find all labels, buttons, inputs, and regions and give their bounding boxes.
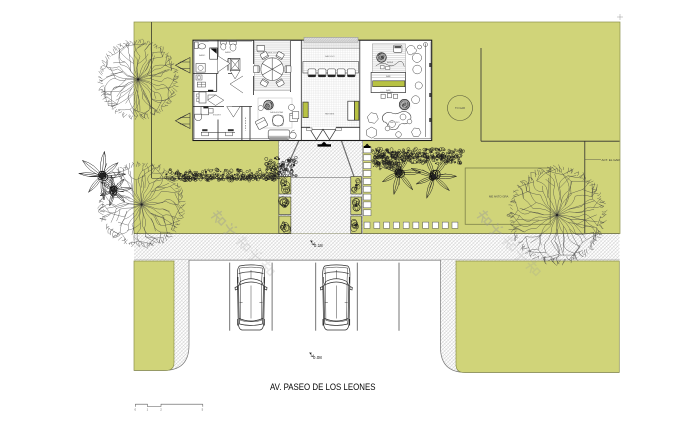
svg-text:PAT MES: PAT MES	[325, 113, 335, 116]
svg-text:BAR: BAR	[386, 75, 391, 78]
svg-text:2: 2	[160, 408, 162, 412]
svg-text:ACT. EL GAR: ACT. EL GAR	[602, 158, 621, 162]
svg-text:ME ANTO GRA: ME ANTO GRA	[489, 195, 509, 199]
svg-text:1: 1	[147, 408, 149, 412]
svg-text:5: 5	[202, 408, 204, 412]
svg-text:0.08: 0.08	[313, 355, 322, 360]
svg-text:AV. PASEO DE LOS LEONES: AV. PASEO DE LOS LEONES	[270, 381, 376, 392]
svg-text:0: 0	[135, 408, 137, 412]
svg-text:BANO: BANO	[225, 51, 231, 54]
svg-text:SAL USO: SAL USO	[325, 55, 335, 58]
svg-text:MES BILLAR: MES BILLAR	[381, 91, 394, 94]
svg-text:AREA: AREA	[387, 61, 393, 64]
svg-text:0.18: 0.18	[314, 243, 323, 248]
svg-text:SAL PISO: SAL PISO	[390, 121, 400, 124]
svg-text:ESCRIT: ESCRIT	[213, 115, 222, 117]
svg-text:BANO: BANO	[199, 54, 205, 57]
svg-text:SALA ESTAR: SALA ESTAR	[270, 111, 284, 114]
svg-text:TO GAR: TO GAR	[455, 106, 465, 110]
